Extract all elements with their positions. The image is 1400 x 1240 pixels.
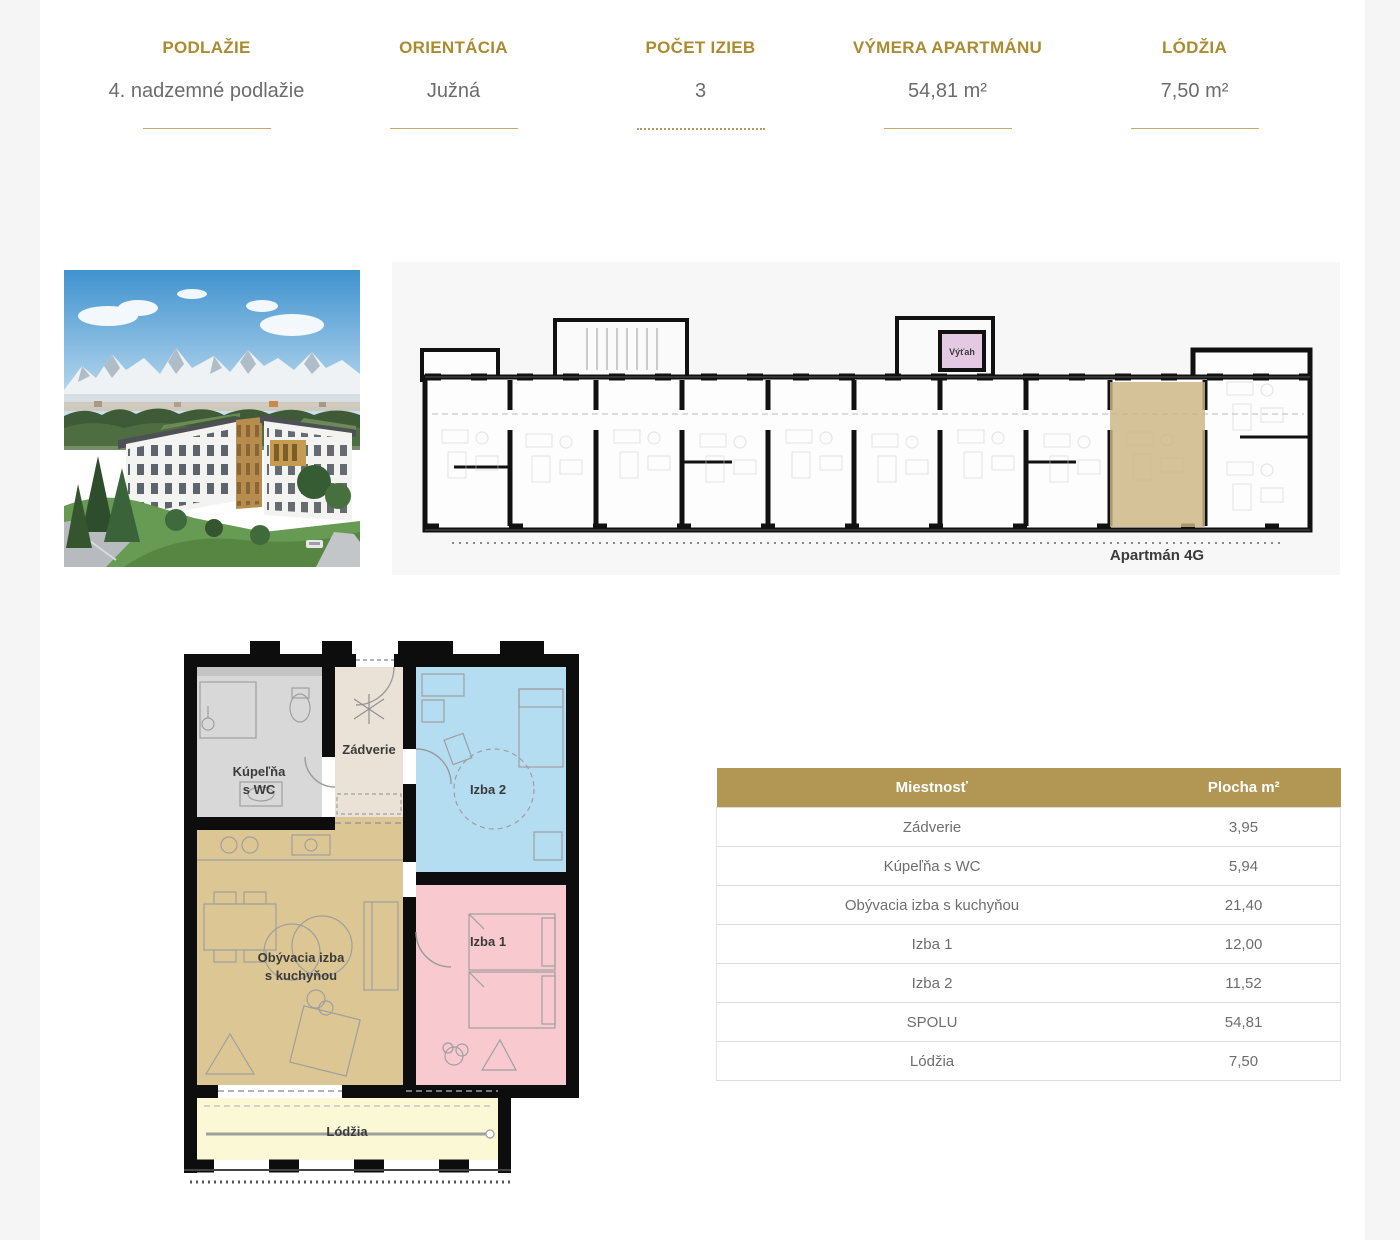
label-bathroom: Kúpeľňa: [233, 764, 286, 779]
summary-label: LÓDŽIA: [1071, 38, 1318, 58]
summary-item-podlazie: PODLAŽIE 4. nadzemné podlažie: [83, 38, 330, 130]
car: [306, 540, 323, 548]
building-photo[interactable]: [64, 270, 360, 567]
summary-item-orientacia: ORIENTÁCIA Južná: [330, 38, 577, 130]
highlighted-apartment[interactable]: [1110, 382, 1205, 527]
summary-item-vymera: VÝMERA APARTMÁNU 54,81 m²: [824, 38, 1071, 130]
header-room: Miestnosť: [717, 768, 1148, 808]
area-cell: 12,00: [1147, 925, 1340, 964]
content-area: PODLAŽIE 4. nadzemné podlažie ORIENTÁCIA…: [40, 0, 1365, 1240]
area-cell: 21,40: [1147, 886, 1340, 925]
town-strip: [64, 401, 360, 411]
summary-label: PODLAŽIE: [83, 38, 330, 58]
label-bathroom-2: s WC: [243, 782, 276, 797]
room-cell: Kúpeľňa s WC: [717, 847, 1148, 886]
room-cell: Izba 2: [717, 964, 1148, 1003]
table-row: Izba 2 11,52: [717, 964, 1341, 1003]
table-row: Izba 1 12,00: [717, 925, 1341, 964]
floor-overview-plan[interactable]: Výťah: [392, 262, 1340, 575]
summary-underline: [1131, 128, 1259, 129]
table-row: Zádverie 3,95: [717, 808, 1341, 847]
room-izba2: [416, 667, 566, 872]
label-hall: Zádverie: [342, 742, 395, 757]
room-cell: Izba 1: [717, 925, 1148, 964]
summary-item-lodzia: LÓDŽIA 7,50 m²: [1071, 38, 1318, 130]
summary-label: POČET IZIEB: [577, 38, 824, 58]
summary-underline: [390, 128, 518, 129]
summary-value: Južná: [330, 80, 577, 103]
label-izba2: Izba 2: [470, 782, 506, 797]
summary-bar: PODLAŽIE 4. nadzemné podlažie ORIENTÁCIA…: [83, 38, 1318, 130]
summary-label: ORIENTÁCIA: [330, 38, 577, 58]
area-cell: 3,95: [1147, 808, 1340, 847]
table-row: Lódžia 7,50: [717, 1042, 1341, 1081]
label-izba1: Izba 1: [470, 934, 506, 949]
header-area: Plocha m²: [1147, 768, 1340, 808]
area-cell: 5,94: [1147, 847, 1340, 886]
area-cell: 11,52: [1147, 964, 1340, 1003]
table-row: Obývacia izba s kuchyňou 21,40: [717, 886, 1341, 925]
summary-value: 54,81 m²: [824, 80, 1071, 103]
elevator-label: Výťah: [949, 347, 975, 357]
summary-item-pocet-izieb: POČET IZIEB 3: [577, 38, 824, 130]
area-cell: 54,81: [1147, 1003, 1340, 1042]
floor-overview-svg: Výťah: [392, 262, 1340, 575]
summary-value: 4. nadzemné podlažie: [83, 80, 330, 103]
summary-value: 7,50 m²: [1071, 80, 1318, 103]
summary-label: VÝMERA APARTMÁNU: [824, 38, 1071, 58]
building-photo-svg: [64, 270, 360, 567]
room-cell: Obývacia izba s kuchyňou: [717, 886, 1148, 925]
summary-underline: [884, 128, 1012, 129]
table-header-row: Miestnosť Plocha m²: [717, 768, 1341, 808]
summary-value: 3: [577, 80, 824, 103]
table-row: SPOLU 54,81: [717, 1003, 1341, 1042]
table-row: Kúpeľňa s WC 5,94: [717, 847, 1341, 886]
stair-block: [555, 320, 687, 377]
area-table: Miestnosť Plocha m² Zádverie 3,95 Kúpeľň…: [716, 768, 1341, 1081]
summary-underline-dotted: [637, 128, 765, 130]
apartment-detail-svg: Kúpeľňa s WC Zádverie Izba 2 Obývacia iz…: [64, 604, 686, 1226]
apartment-detail-plan[interactable]: Kúpeľňa s WC Zádverie Izba 2 Obývacia iz…: [64, 604, 686, 1226]
room-cell: Lódžia: [717, 1042, 1148, 1081]
area-cell: 7,50: [1147, 1042, 1340, 1081]
page-canvas: PODLAŽIE 4. nadzemné podlažie ORIENTÁCIA…: [0, 0, 1400, 1240]
label-loggia: Lódžia: [326, 1124, 368, 1139]
apartment-name-label: Apartmán 4G: [1110, 547, 1204, 564]
label-living-2: s kuchyňou: [265, 968, 337, 983]
room-cell: Zádverie: [717, 808, 1148, 847]
room-cell: SPOLU: [717, 1003, 1148, 1042]
label-living: Obývacia izba: [258, 950, 345, 965]
summary-underline: [143, 128, 271, 129]
